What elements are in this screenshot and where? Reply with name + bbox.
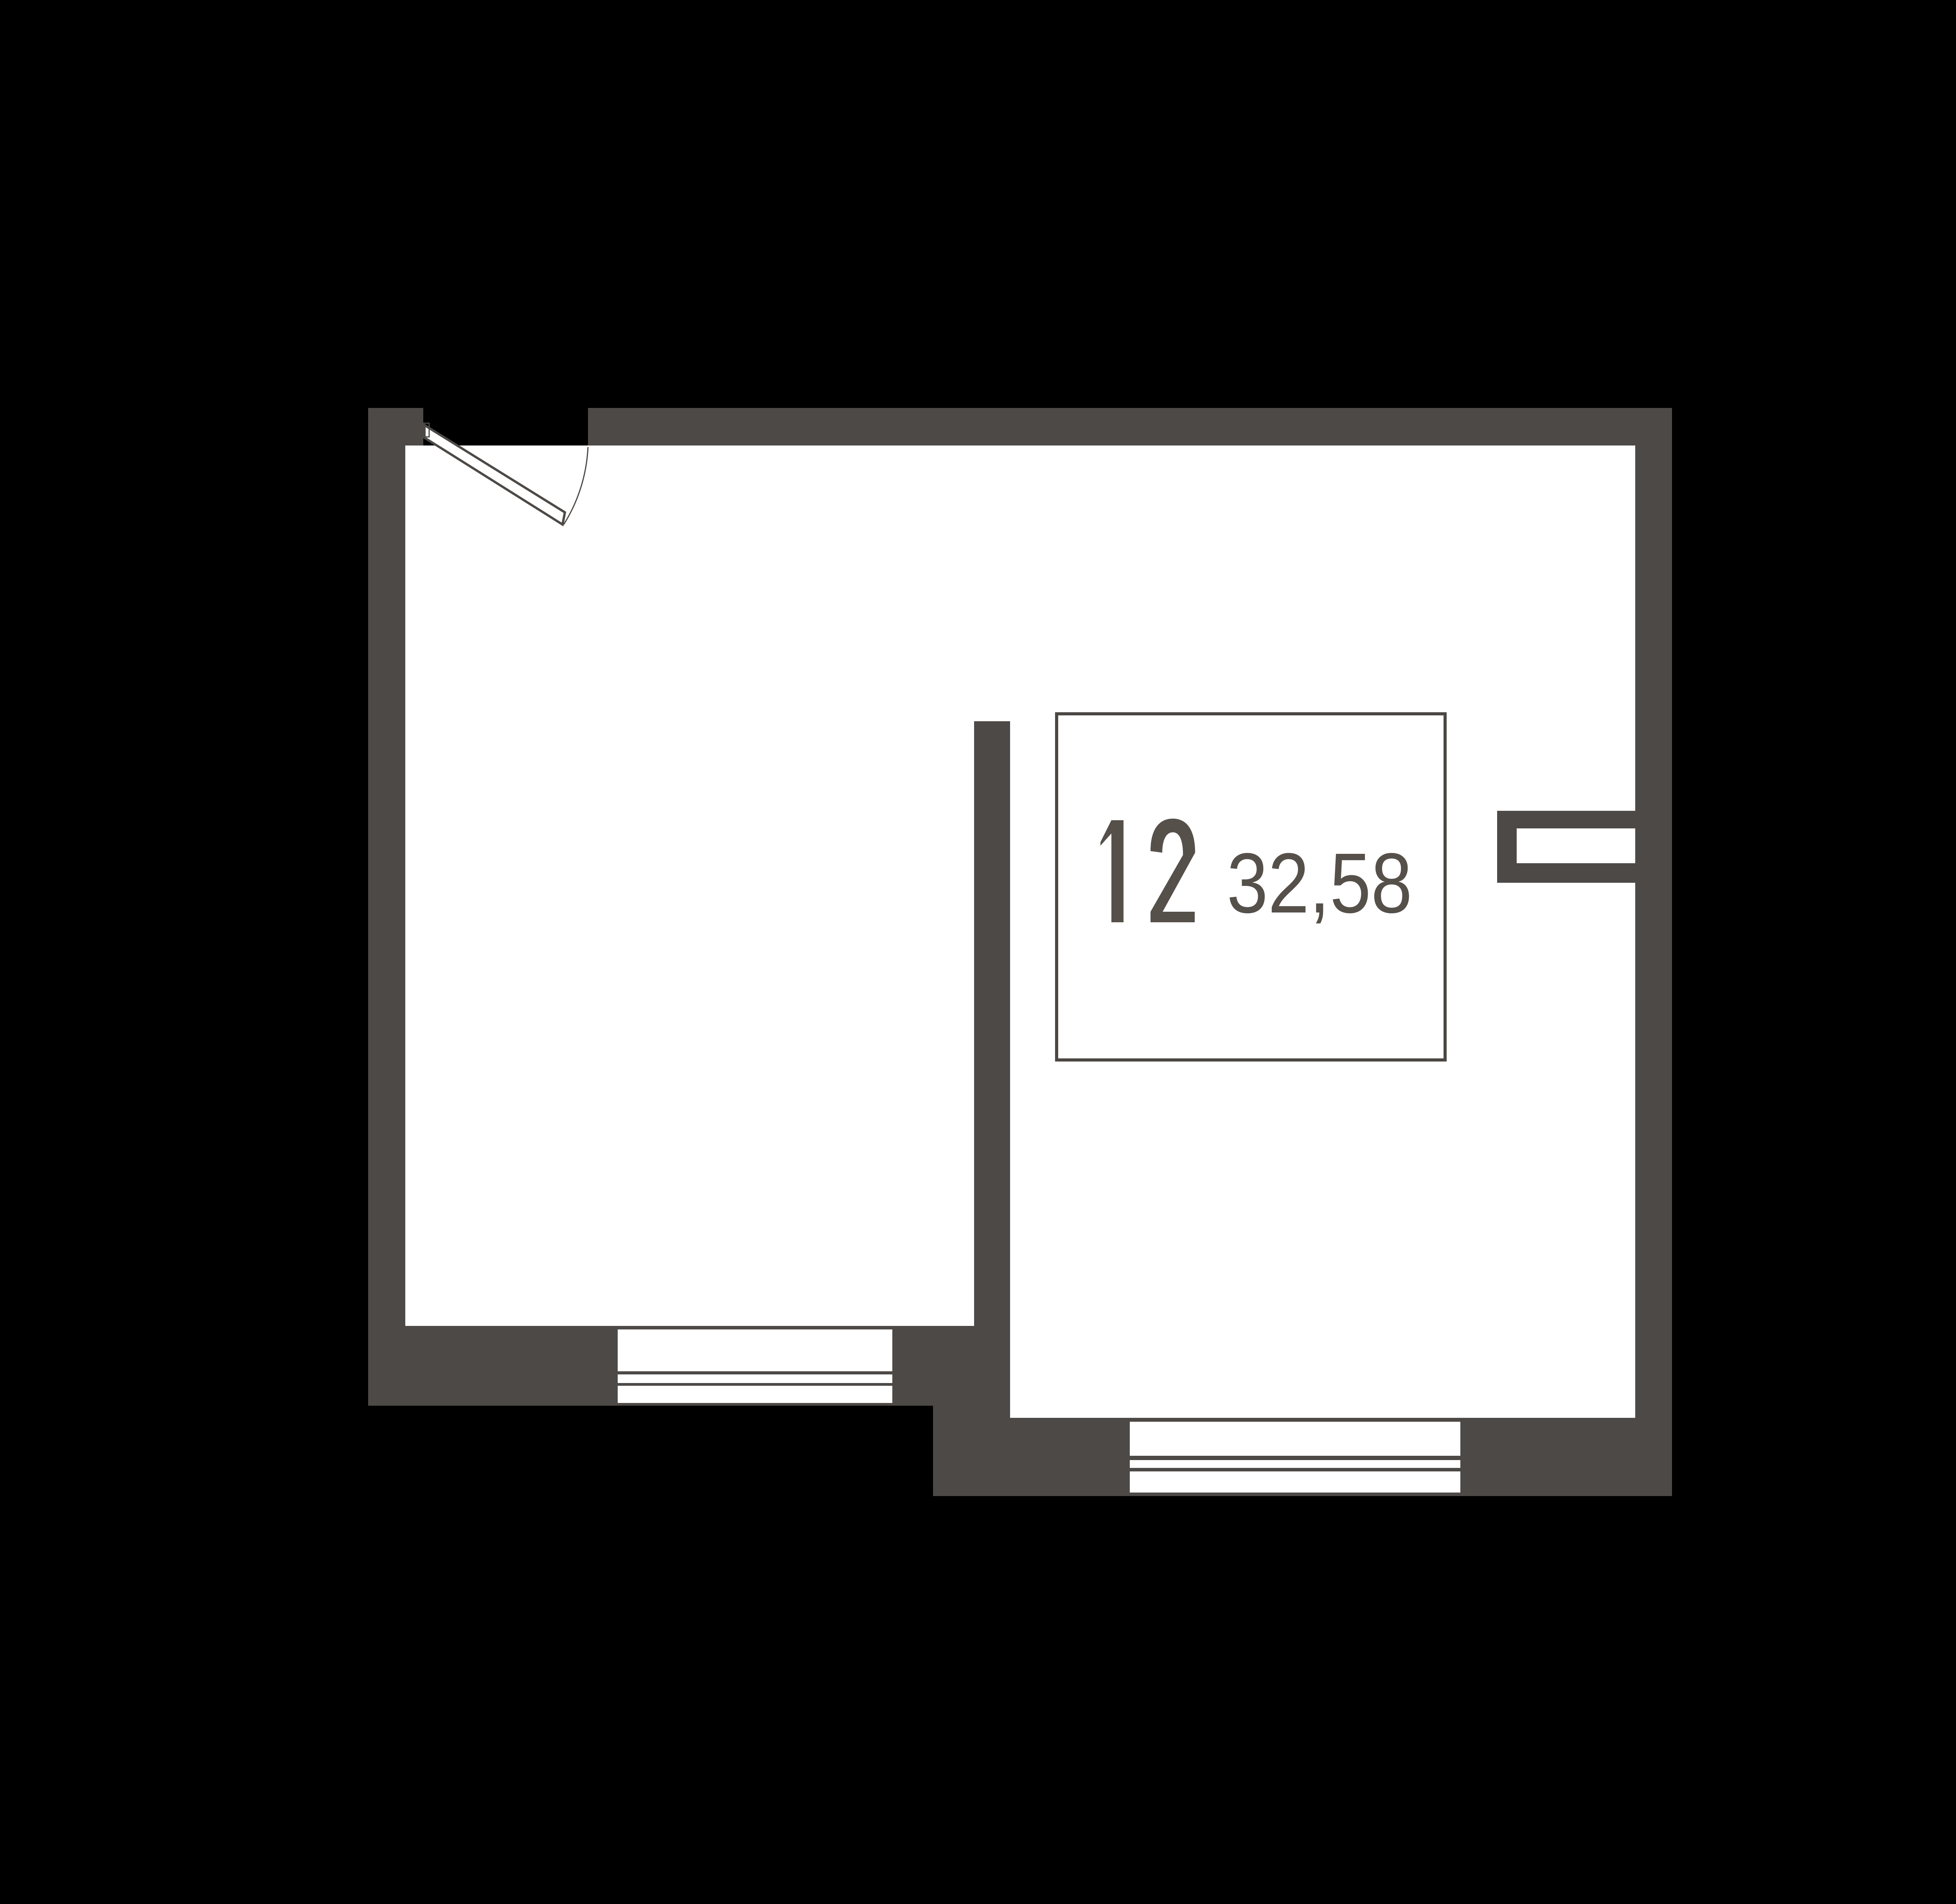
svg-text:32,58: 32,58 — [1227, 836, 1412, 931]
